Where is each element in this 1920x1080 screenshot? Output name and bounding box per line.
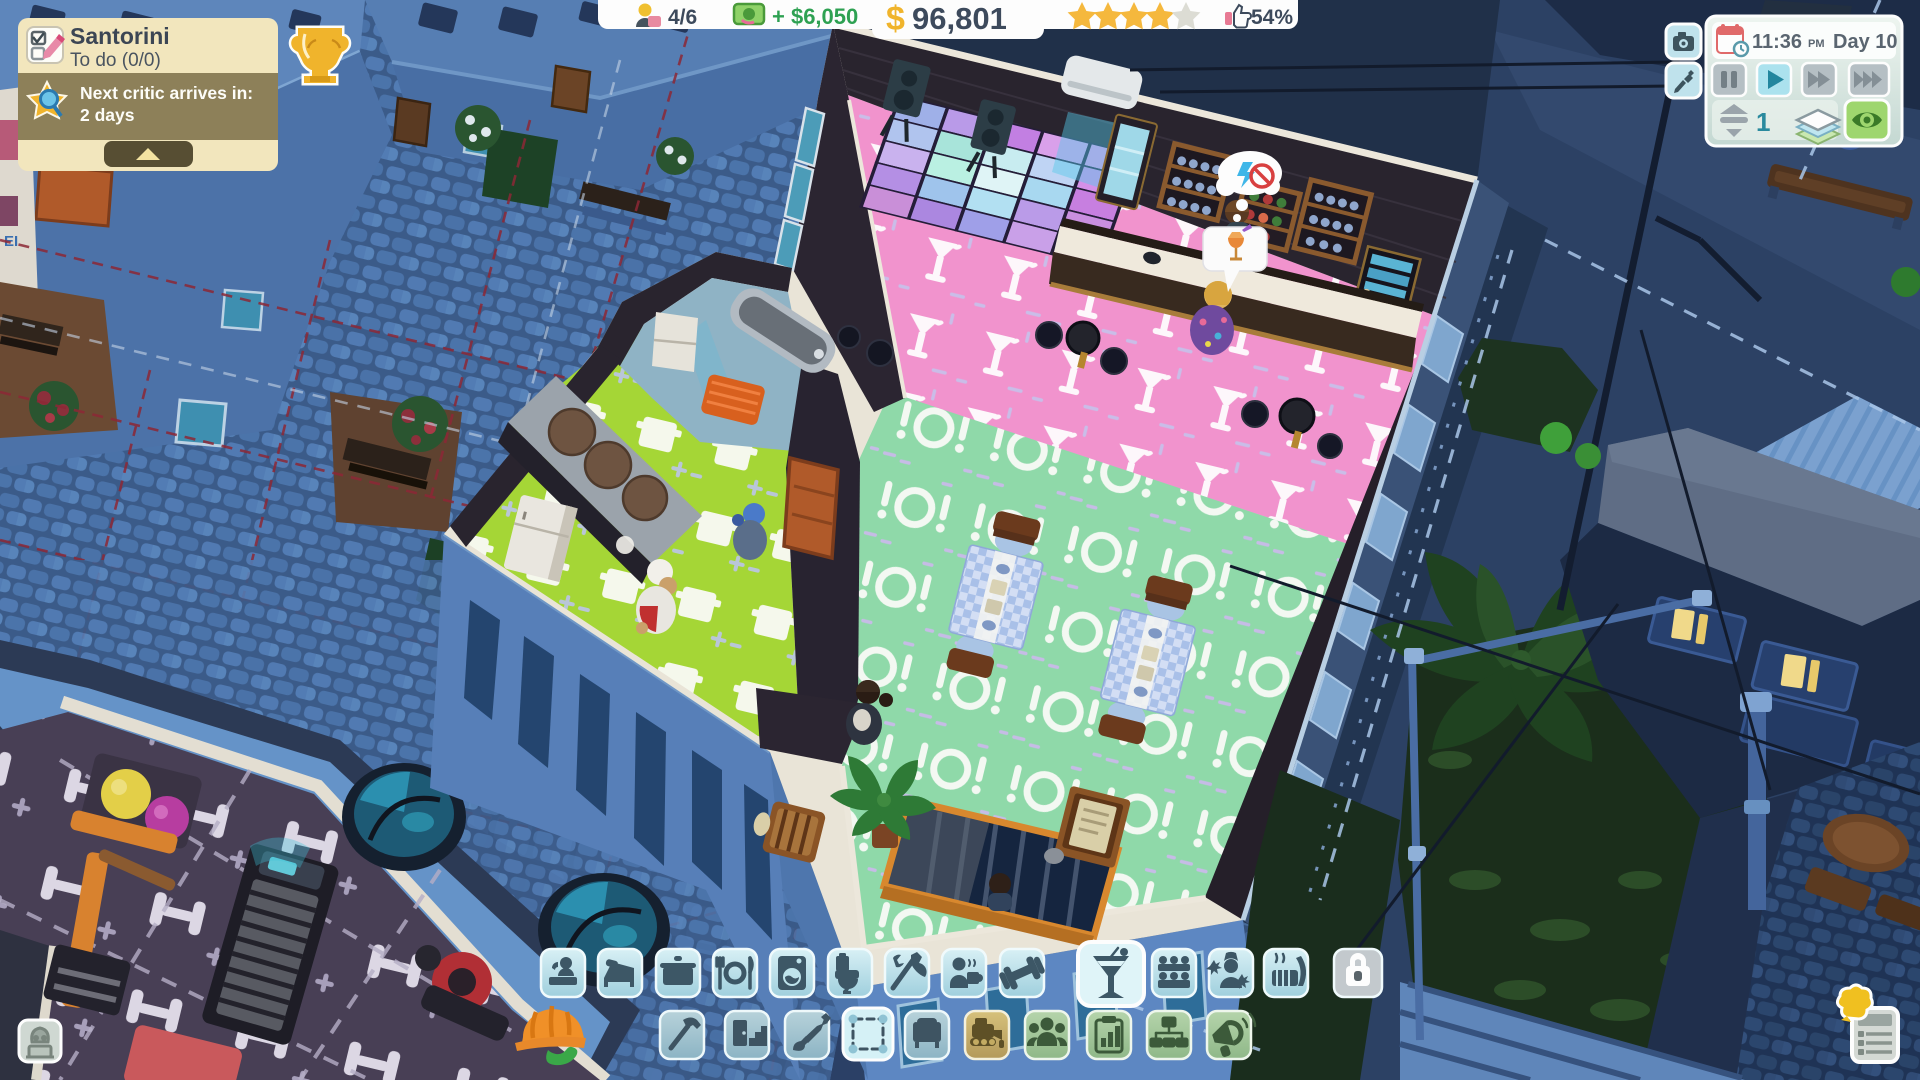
svg-text:+ $6,050: + $6,050	[772, 4, 858, 29]
svg-text:Next critic arrives in:: Next critic arrives in:	[80, 83, 253, 103]
svg-text:Day 10: Day 10	[1833, 31, 1898, 53]
svg-text:96,801: 96,801	[912, 1, 1007, 36]
svg-text:11:36: 11:36	[1752, 31, 1802, 53]
svg-text:4/6: 4/6	[668, 6, 697, 29]
svg-text:Santorini: Santorini	[70, 23, 170, 49]
svg-text:PM: PM	[1808, 38, 1825, 50]
svg-text:54%: 54%	[1251, 6, 1293, 29]
svg-text:1: 1	[1756, 107, 1770, 137]
svg-text:$: $	[886, 0, 905, 38]
svg-text:To do (0/0): To do (0/0)	[70, 50, 161, 71]
svg-text:2 days: 2 days	[80, 105, 135, 125]
